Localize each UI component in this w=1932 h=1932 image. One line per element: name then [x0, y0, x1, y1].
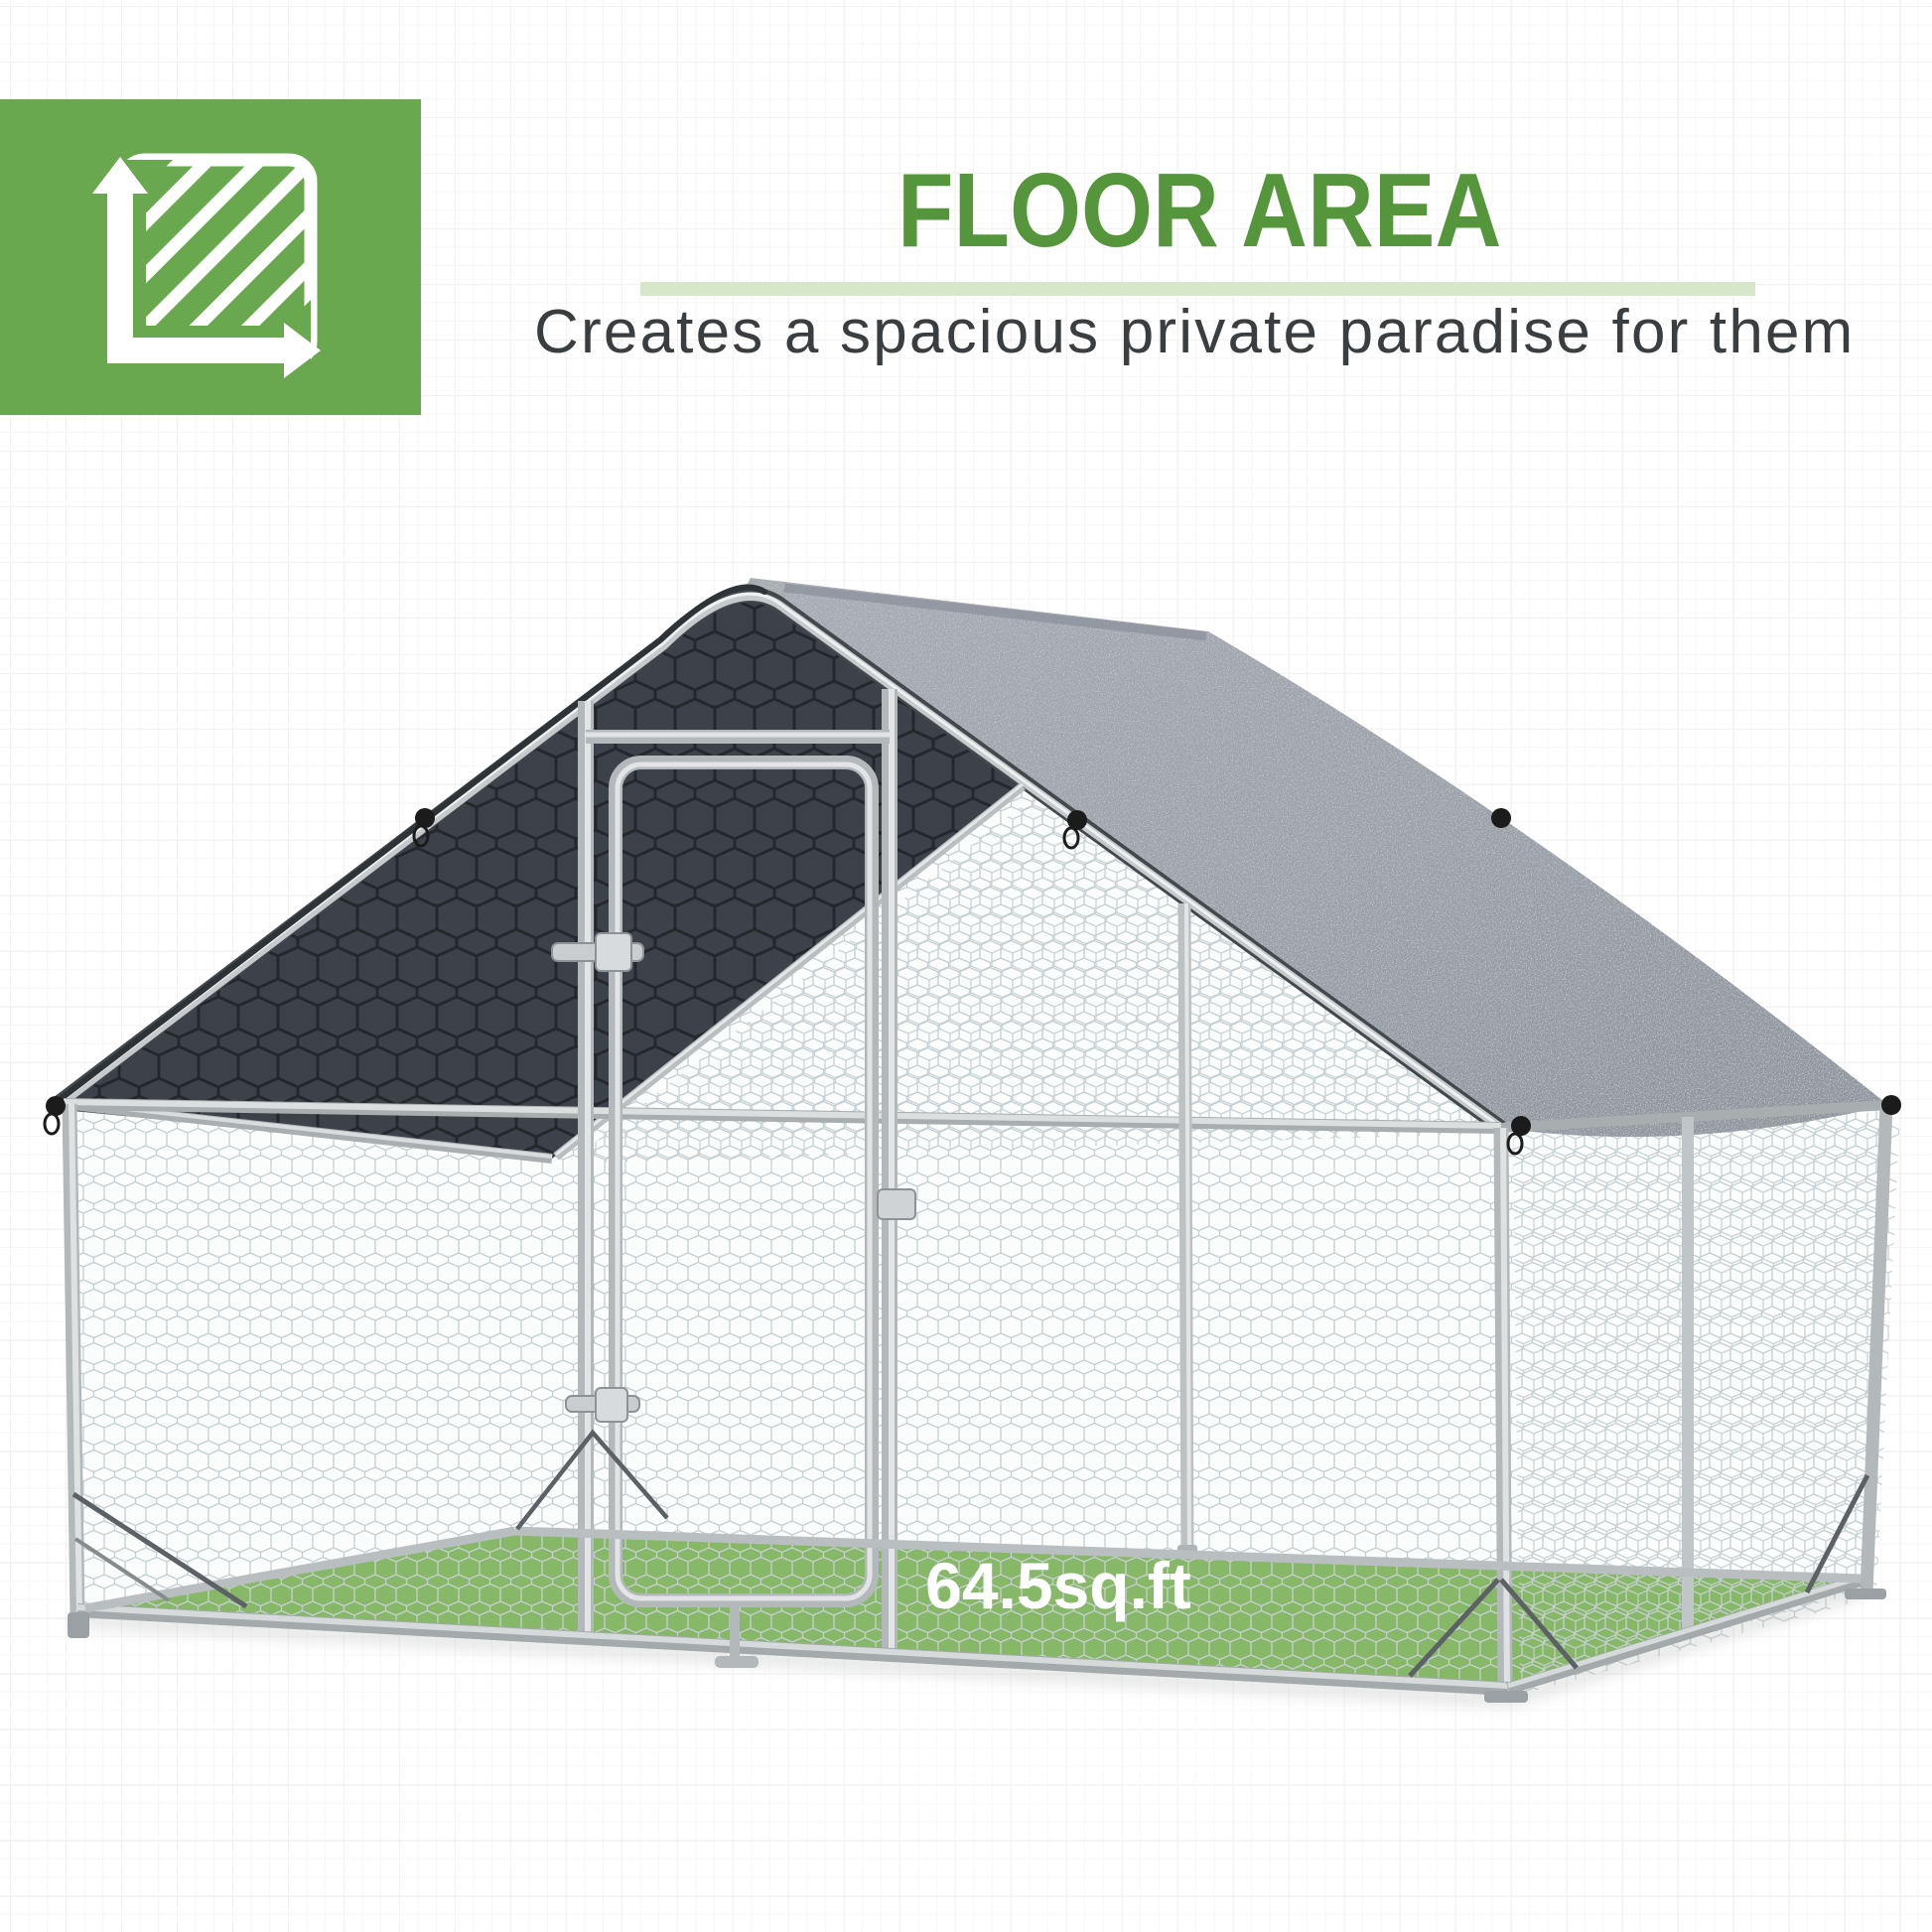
svg-text:64.5sq.ft: 64.5sq.ft: [925, 1549, 1191, 1622]
